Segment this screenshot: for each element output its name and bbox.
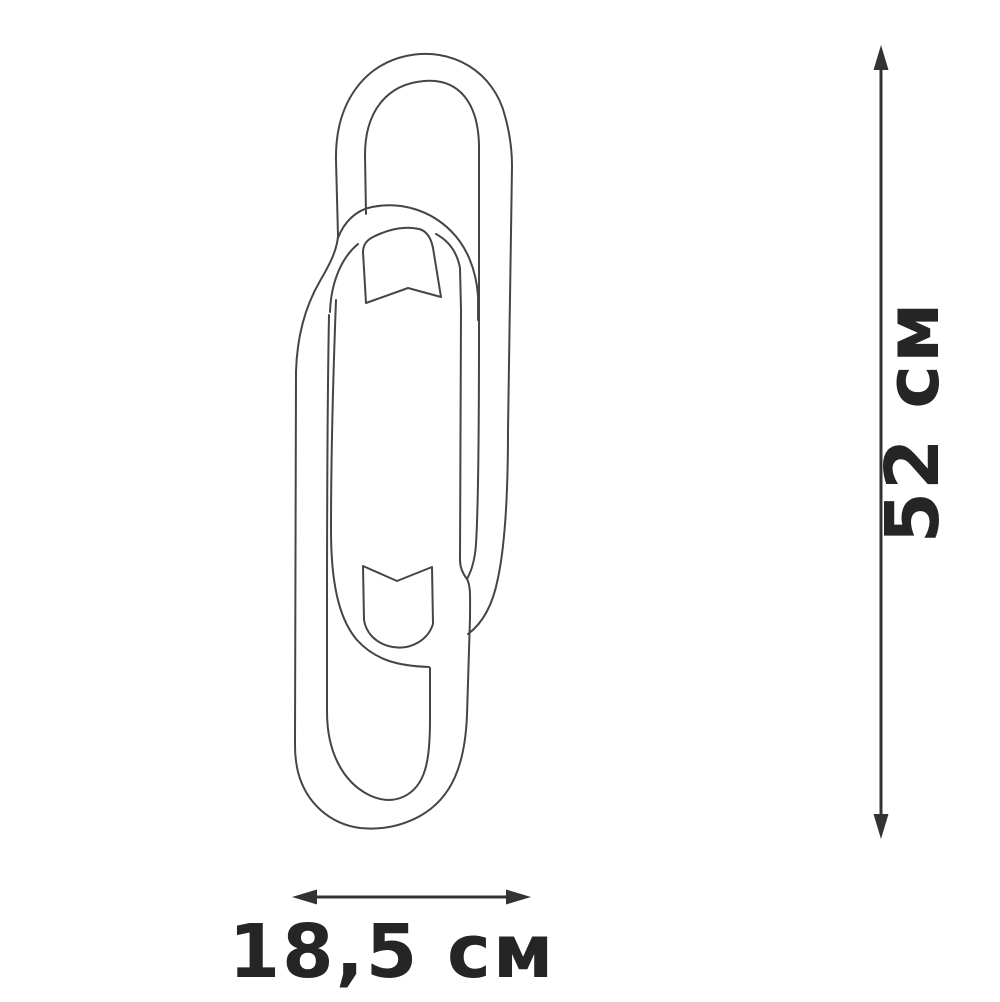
width-dimension-label: 18,5 см xyxy=(229,909,556,995)
height-arrow-down-icon xyxy=(874,814,889,839)
lamp-outline xyxy=(295,54,512,829)
width-arrow-right-icon xyxy=(506,890,531,905)
upper-shade xyxy=(363,228,441,303)
height-arrow-up-icon xyxy=(874,45,889,70)
diagram-canvas: 52 см 18,5 см xyxy=(0,0,1000,1002)
width-arrow-left-icon xyxy=(292,890,317,905)
height-dimension: 52 см xyxy=(870,45,956,839)
lamp-technical-drawing: 52 см 18,5 см xyxy=(0,0,1000,1002)
width-dimension: 18,5 см xyxy=(229,890,556,996)
bottom-link-inner-right xyxy=(436,234,467,579)
lower-shade xyxy=(363,566,433,648)
height-dimension-label: 52 см xyxy=(870,300,956,543)
bottom-link-inner-bottom xyxy=(327,315,430,800)
